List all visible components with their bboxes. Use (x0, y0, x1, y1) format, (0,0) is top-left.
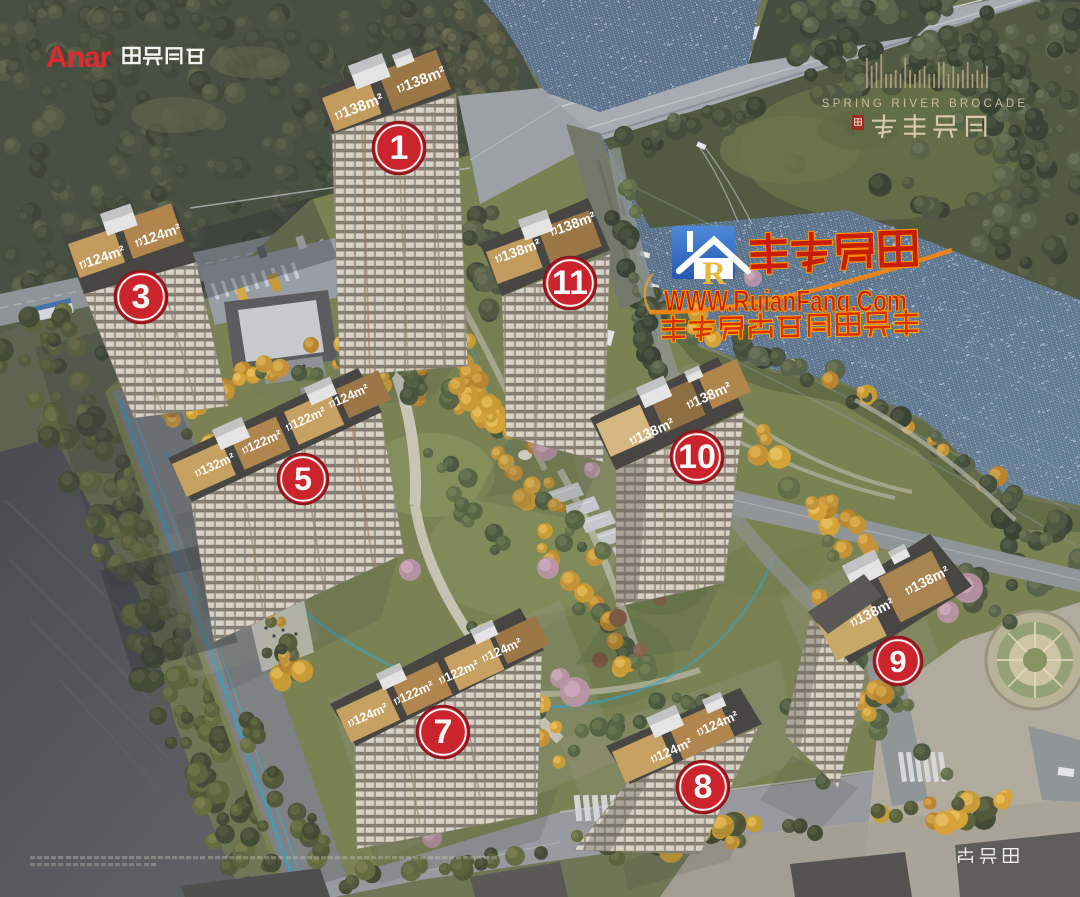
svg-text:SPRING RIVER BROCADE: SPRING RIVER BROCADE (822, 98, 1029, 110)
svg-text:Anar: Anar (46, 41, 112, 74)
